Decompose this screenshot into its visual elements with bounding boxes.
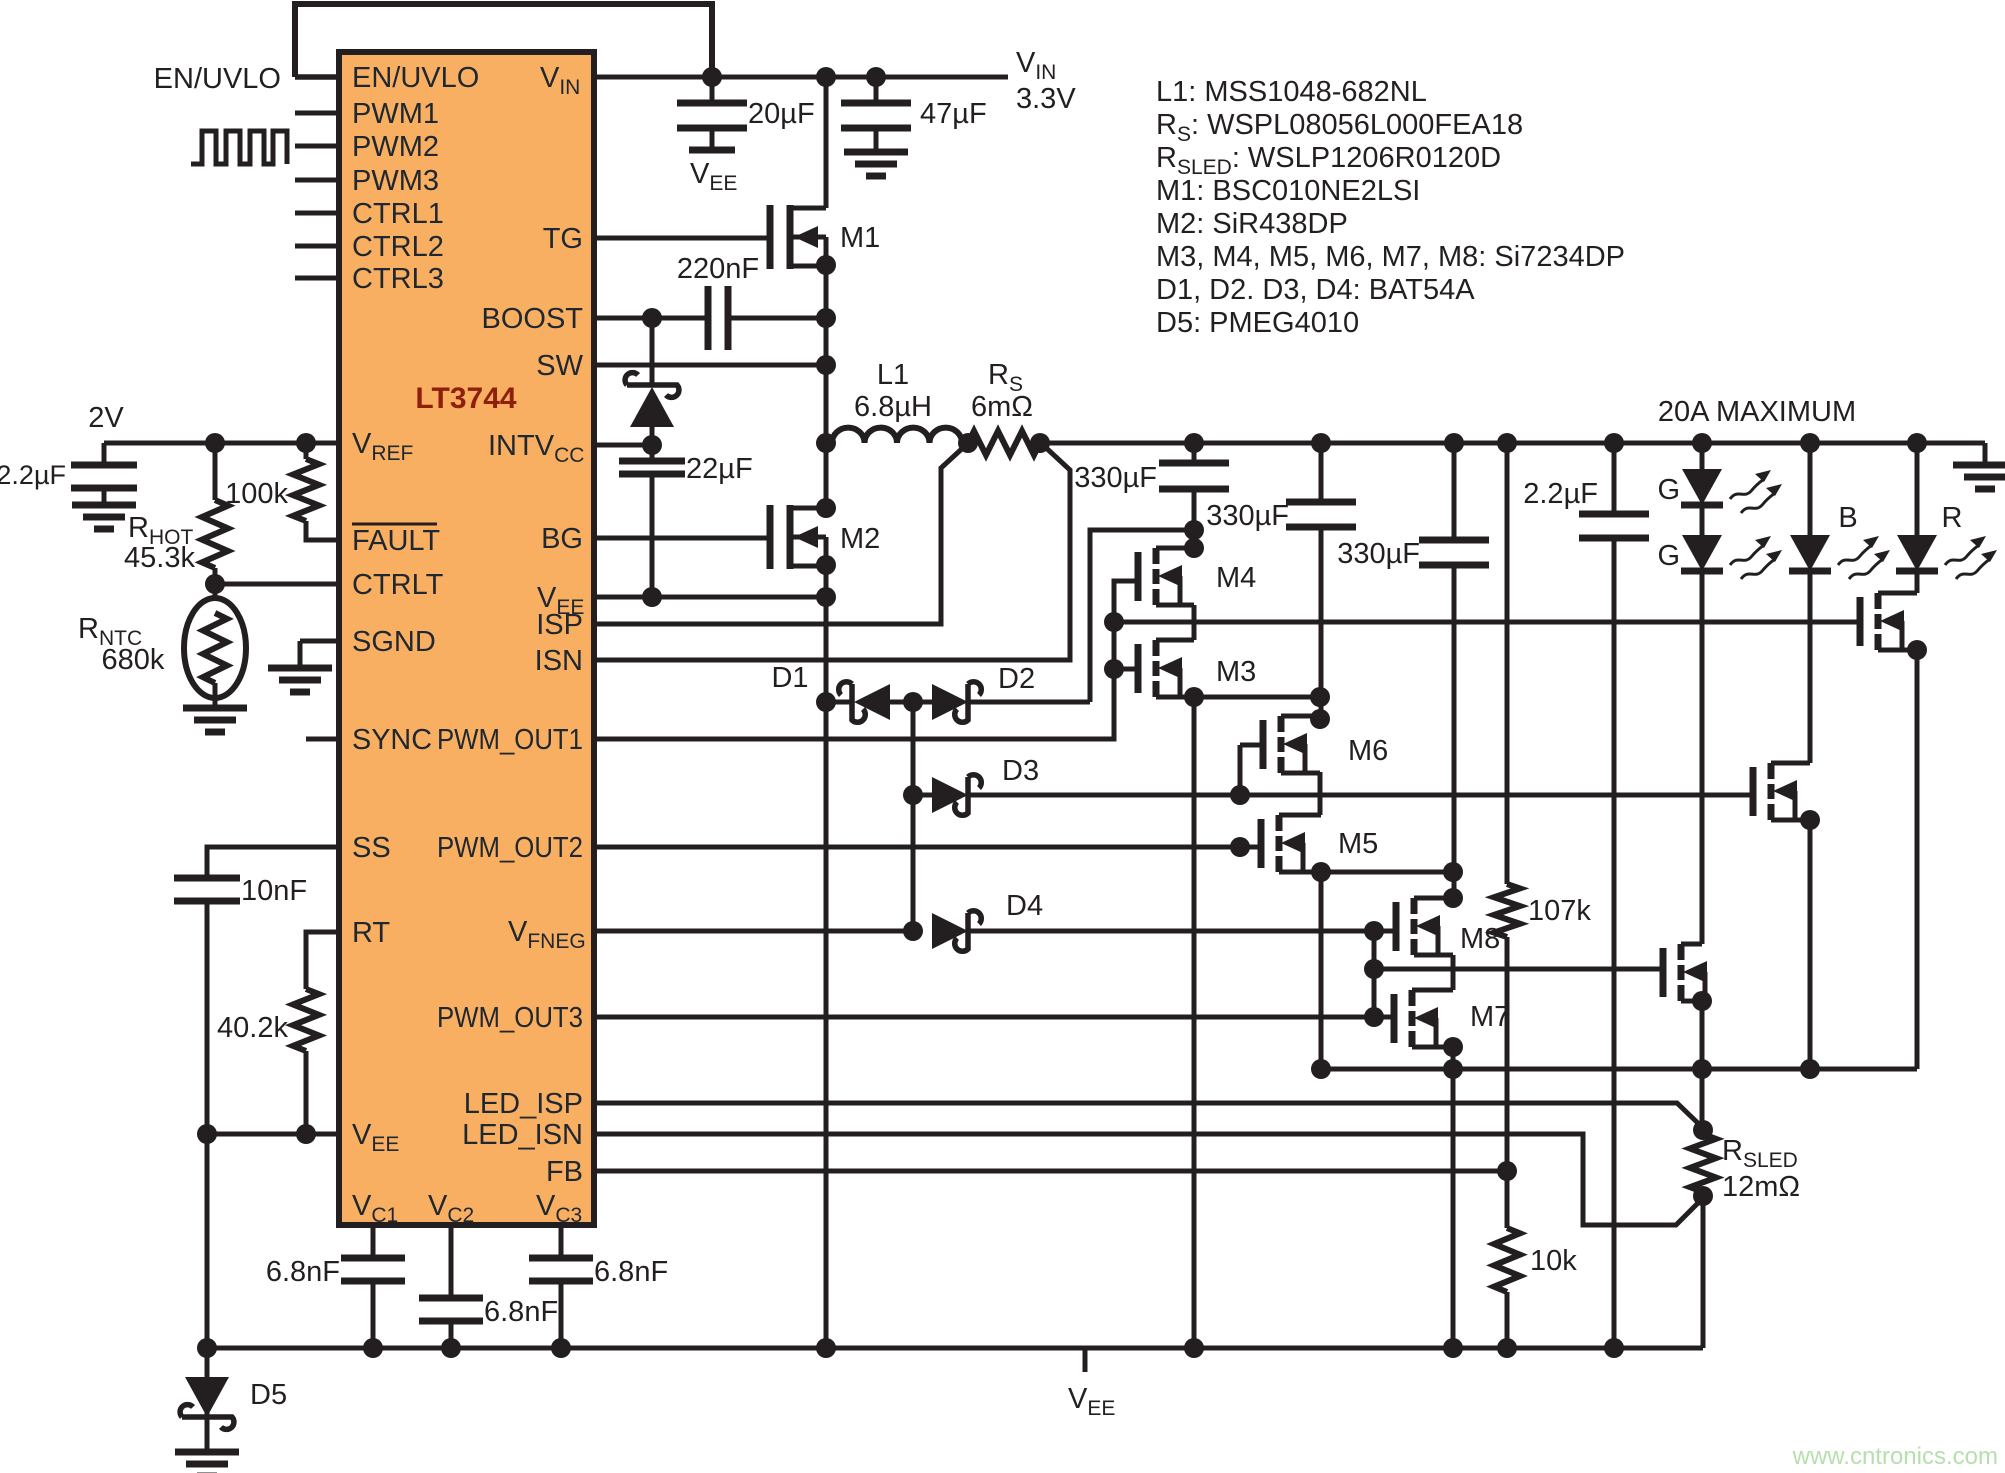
svg-text:20µF: 20µF <box>748 98 815 130</box>
svg-text:PWM2: PWM2 <box>352 131 439 163</box>
svg-text:CTRL3: CTRL3 <box>352 263 444 295</box>
svg-text:6mΩ: 6mΩ <box>971 391 1033 423</box>
svg-text:D2: D2 <box>998 663 1035 695</box>
svg-text:D5: D5 <box>250 1379 287 1411</box>
svg-text:M2: M2 <box>840 523 880 555</box>
svg-text:3.3V: 3.3V <box>1016 83 1076 115</box>
svg-text:PWM_OUT1: PWM_OUT1 <box>437 724 583 756</box>
svg-text:680k: 680k <box>102 644 165 676</box>
svg-text:L1: MSS1048-682NL: L1: MSS1048-682NL <box>1156 76 1427 108</box>
svg-text:6.8µH: 6.8µH <box>854 391 932 423</box>
svg-text:R: R <box>1942 502 1963 534</box>
svg-text:6.8nF: 6.8nF <box>594 1256 668 1288</box>
svg-text:CTRL2: CTRL2 <box>352 231 444 263</box>
svg-text:40.2k: 40.2k <box>217 1012 288 1044</box>
svg-text:EN/UVLO: EN/UVLO <box>352 62 479 94</box>
svg-text:M2: SiR438DP: M2: SiR438DP <box>1156 208 1348 240</box>
svg-text:M1: M1 <box>840 222 880 254</box>
svg-text:M4: M4 <box>1216 562 1256 594</box>
svg-text:2V: 2V <box>88 402 124 434</box>
svg-text:PWM_OUT2: PWM_OUT2 <box>437 832 583 864</box>
svg-text:LED_ISP: LED_ISP <box>464 1088 583 1120</box>
svg-text:330µF: 330µF <box>1337 538 1420 570</box>
svg-text:SS: SS <box>352 832 391 864</box>
svg-text:PWM_OUT3: PWM_OUT3 <box>437 1002 583 1034</box>
svg-text:M8: M8 <box>1460 923 1500 955</box>
svg-text:330µF: 330µF <box>1074 462 1157 494</box>
svg-text:6.8nF: 6.8nF <box>484 1296 558 1328</box>
svg-text:SGND: SGND <box>352 626 436 658</box>
svg-text:ISP: ISP <box>536 609 583 641</box>
svg-text:PWM1: PWM1 <box>352 98 439 130</box>
svg-text:M5: M5 <box>1338 828 1378 860</box>
svg-text:45.3k: 45.3k <box>124 542 195 574</box>
svg-text:M6: M6 <box>1348 735 1388 767</box>
svg-text:12mΩ: 12mΩ <box>1722 1171 1800 1203</box>
svg-text:107k: 107k <box>1528 895 1591 927</box>
svg-text:PWM3: PWM3 <box>352 165 439 197</box>
svg-text:100k: 100k <box>225 478 288 510</box>
svg-text:2.2µF: 2.2µF <box>1523 478 1598 510</box>
svg-text:L1: L1 <box>877 359 909 391</box>
svg-text:LT3744: LT3744 <box>415 382 516 415</box>
svg-text:D4: D4 <box>1006 890 1043 922</box>
svg-text:D3: D3 <box>1002 755 1039 787</box>
svg-text:RT: RT <box>352 917 390 949</box>
svg-text:ISN: ISN <box>535 645 583 677</box>
svg-text:10nF: 10nF <box>241 875 307 907</box>
svg-text:D5: PMEG4010: D5: PMEG4010 <box>1156 307 1359 339</box>
svg-text:220nF: 220nF <box>677 253 759 285</box>
svg-text:EN/UVLO: EN/UVLO <box>154 63 281 95</box>
svg-text:10k: 10k <box>1530 1245 1577 1277</box>
svg-text:CTRLT: CTRLT <box>352 569 444 601</box>
svg-text:SW: SW <box>536 350 583 382</box>
svg-text:47µF: 47µF <box>920 98 987 130</box>
svg-text:M3: M3 <box>1216 656 1256 688</box>
svg-text:2.2µF: 2.2µF <box>0 460 66 490</box>
svg-text:RS: WSPL08056L000FEA18: RS: WSPL08056L000FEA18 <box>1156 109 1523 146</box>
svg-text:TG: TG <box>543 223 583 255</box>
svg-text:G: G <box>1657 540 1680 572</box>
svg-text:M7: M7 <box>1470 1001 1510 1033</box>
svg-text:M1: BSC010NE2LSI: M1: BSC010NE2LSI <box>1156 175 1420 207</box>
svg-text:LED_ISN: LED_ISN <box>462 1119 583 1151</box>
svg-text:M3, M4, M5, M6, M7, M8: Si7234: M3, M4, M5, M6, M7, M8: Si7234DP <box>1156 241 1625 273</box>
svg-text:D1: D1 <box>771 662 808 694</box>
svg-text:B: B <box>1838 502 1857 534</box>
svg-text:20A MAXIMUM: 20A MAXIMUM <box>1658 396 1856 428</box>
svg-text:SYNC: SYNC <box>352 724 432 756</box>
svg-text:D1, D2. D3, D4: BAT54A: D1, D2. D3, D4: BAT54A <box>1156 274 1475 306</box>
svg-text:FAULT: FAULT <box>352 525 440 557</box>
svg-text:FB: FB <box>546 1156 583 1188</box>
svg-text:22µF: 22µF <box>686 453 753 485</box>
svg-text:CTRL1: CTRL1 <box>352 198 444 230</box>
svg-text:BOOST: BOOST <box>481 303 583 335</box>
svg-text:330µF: 330µF <box>1206 500 1289 532</box>
svg-text:www.cntronics.com: www.cntronics.com <box>1792 1443 1998 1470</box>
svg-text:6.8nF: 6.8nF <box>266 1256 340 1288</box>
svg-text:G: G <box>1657 474 1680 506</box>
svg-text:BG: BG <box>541 523 583 555</box>
